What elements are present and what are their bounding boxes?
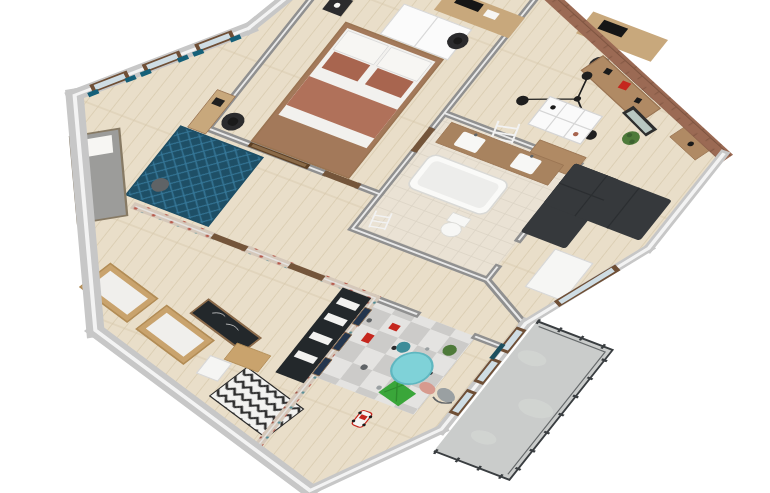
floorplan-stage: 3D isometric floor plan render of a furn…: [0, 0, 770, 493]
floorplan-render: 3D isometric floor plan render of a furn…: [0, 0, 770, 493]
